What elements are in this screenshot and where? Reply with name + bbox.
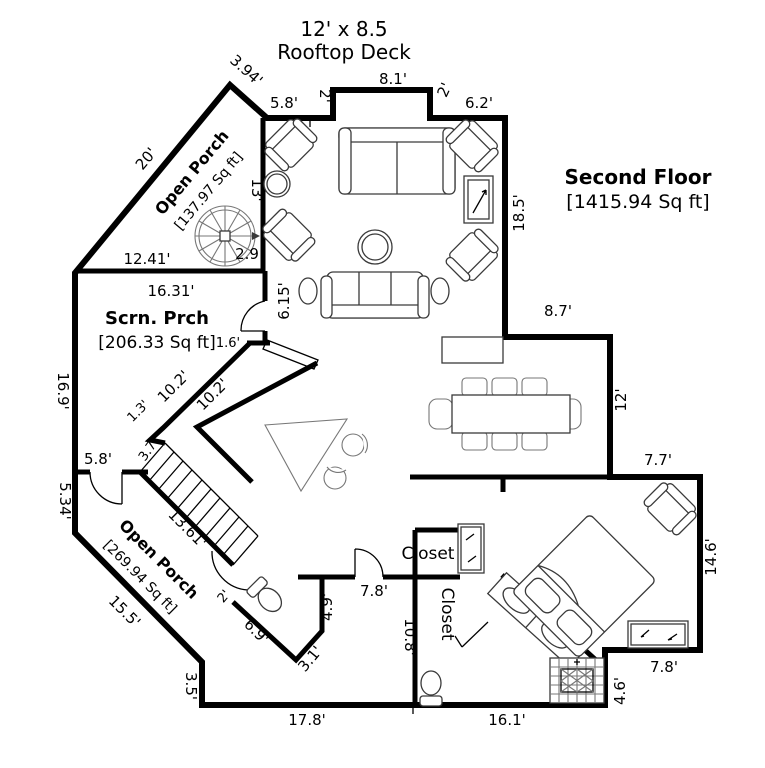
dim-deck-step-right: 2' bbox=[433, 80, 455, 100]
dim-scrn-jog: 1.6' bbox=[216, 336, 240, 351]
dining-set bbox=[429, 378, 581, 450]
dim-deck-left: 5.8' bbox=[270, 94, 298, 112]
dim-bath-wall: 10.8' bbox=[401, 618, 419, 656]
coffee-table bbox=[358, 230, 392, 264]
dim-hall-side: 4.9' bbox=[318, 593, 336, 621]
room-label-screened-porch: Scrn. Prch bbox=[105, 308, 209, 329]
dim-deck-step-left: 2' bbox=[316, 89, 334, 103]
dim-bottom-right: 16.1' bbox=[488, 711, 526, 729]
dim-dining-right: 12' bbox=[612, 388, 630, 411]
closet-label-lower: Closet bbox=[437, 588, 457, 641]
room-area-screened-porch: [206.33 Sq ft] bbox=[98, 333, 216, 353]
closet-label-upper: Closet bbox=[402, 544, 455, 564]
toilet bbox=[420, 671, 442, 706]
dim-bath-side: 3.1' bbox=[294, 642, 326, 675]
dim-porch-door: 5.8' bbox=[84, 450, 112, 468]
loveseat bbox=[339, 128, 455, 194]
dim-hall-width: 7.8' bbox=[360, 582, 388, 600]
dim-porch-hypotenuse: 20' bbox=[132, 144, 161, 173]
dim-porch-side: 13' bbox=[248, 178, 266, 201]
side-table bbox=[264, 171, 290, 197]
dim-bedroom-bottom: 7.8' bbox=[650, 658, 678, 676]
dim-hall-diag-upper: 10.2' bbox=[154, 367, 193, 406]
dim-bedroom-right: 14.6' bbox=[702, 538, 720, 576]
dim-bath-door: 2' bbox=[215, 587, 234, 606]
dim-bedroom-step: 4.6' bbox=[611, 677, 629, 705]
dim-hall-diag-lower: 10.2' bbox=[193, 375, 232, 414]
dim-jog-small: 1.3' bbox=[125, 398, 153, 426]
dim-scrn-door-wall: 6.15' bbox=[275, 282, 293, 320]
dim-porch-bottom: 12.41' bbox=[123, 250, 170, 268]
dim-scrn-left: 16.9' bbox=[54, 372, 72, 410]
dim-bath-diag: 6.9' bbox=[240, 615, 273, 648]
floor-area: [1415.94 Sq ft] bbox=[566, 191, 709, 213]
deck-size-label: 12' x 8.5 bbox=[300, 17, 387, 41]
toilet bbox=[246, 576, 287, 617]
dim-porch-step: 3.5' bbox=[182, 672, 200, 700]
dim-scrn-top: 16.31' bbox=[147, 282, 194, 300]
tv-console bbox=[464, 176, 493, 223]
dim-deck-right: 6.2' bbox=[465, 94, 493, 112]
dresser-mirror bbox=[628, 621, 688, 648]
deck-name-label: Rooftop Deck bbox=[277, 40, 411, 64]
armchair bbox=[258, 206, 317, 265]
dim-deck-top: 8.1' bbox=[379, 70, 407, 88]
dim-bedroom-top: 7.7' bbox=[644, 451, 672, 469]
dim-bottom-left: 17.8' bbox=[288, 711, 326, 729]
armchair bbox=[260, 114, 319, 173]
dim-living-right: 18.5' bbox=[510, 194, 528, 232]
dim-spiral-stair: 2.9 bbox=[235, 245, 259, 263]
dim-porch-left: 5.34' bbox=[56, 482, 74, 520]
corner-desk bbox=[265, 419, 367, 491]
dim-dining-top: 8.7' bbox=[544, 302, 572, 320]
shower bbox=[550, 658, 604, 703]
floor-plan-canvas: 12' x 8.5 Rooftop Deck Second Floor [141… bbox=[0, 0, 765, 768]
sideboard bbox=[442, 337, 503, 363]
mirror-dresser bbox=[458, 524, 484, 573]
floor-plan-page: 12' x 8.5 Rooftop Deck Second Floor [141… bbox=[0, 0, 765, 768]
dim-stairs: 13.61' bbox=[165, 505, 211, 551]
floor-title: Second Floor bbox=[565, 165, 712, 189]
armchair bbox=[641, 478, 700, 537]
armchair bbox=[443, 226, 502, 285]
sofa bbox=[299, 272, 449, 318]
